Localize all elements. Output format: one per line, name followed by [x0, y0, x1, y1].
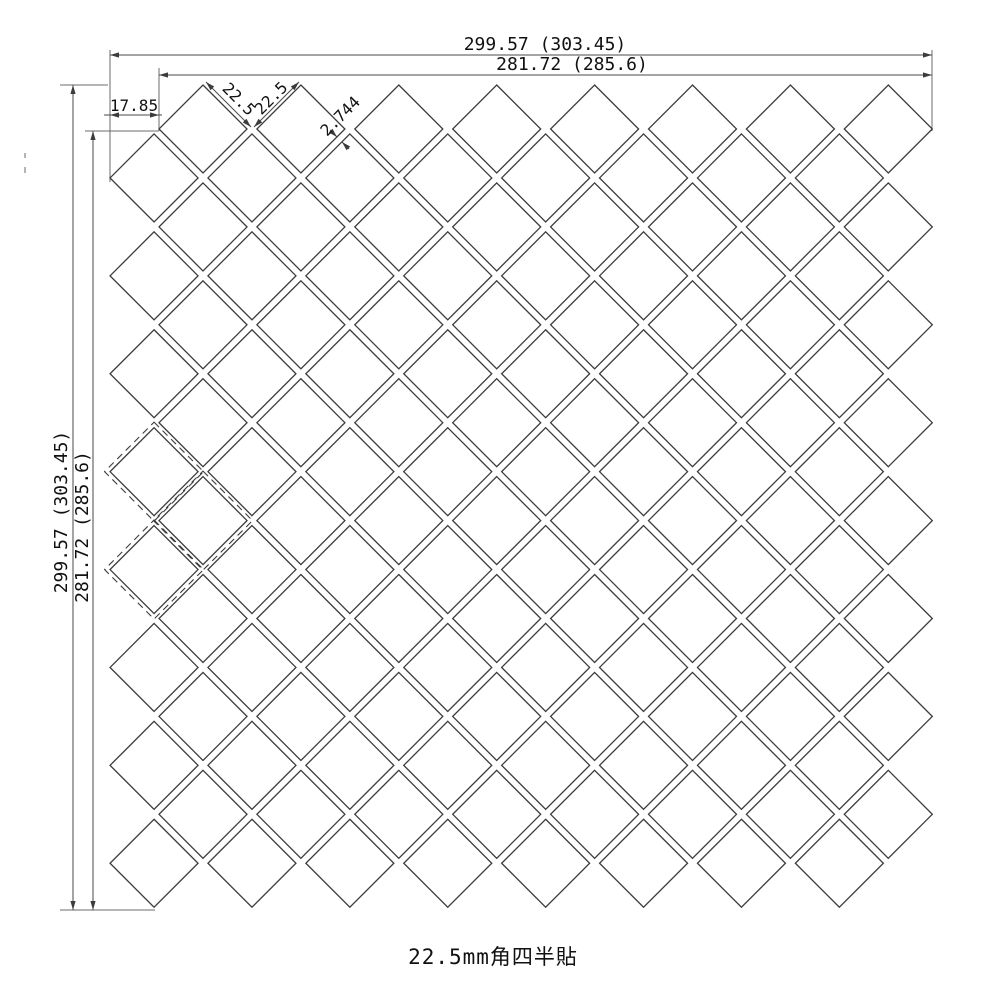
dim-left-outer-label: 299.57 (303.45) — [51, 431, 72, 594]
tile-grid — [110, 85, 932, 907]
dim-left-inner-label: 281.72 (285.6) — [72, 451, 93, 603]
dim-top-inner-label: 281.72 (285.6) — [496, 54, 648, 75]
dim-top-outer-label: 299.57 (303.45) — [464, 34, 627, 55]
dim-joint-width-label: 2.744 — [316, 92, 363, 139]
drawing-caption: 22.5mm角四半貼 — [408, 945, 578, 969]
drawing-page: 299.57 (303.45) 281.72 (285.6) 299.57 (3… — [0, 0, 1000, 1000]
dim-tile-edge-1-label: 22.5 — [219, 79, 260, 120]
tile-drawing-canvas: 299.57 (303.45) 281.72 (285.6) 299.57 (3… — [0, 0, 1000, 1000]
dim-edge-offset-label: 17.85 — [110, 96, 158, 115]
dim-tile-edge-2-label: 22.5 — [251, 78, 292, 119]
